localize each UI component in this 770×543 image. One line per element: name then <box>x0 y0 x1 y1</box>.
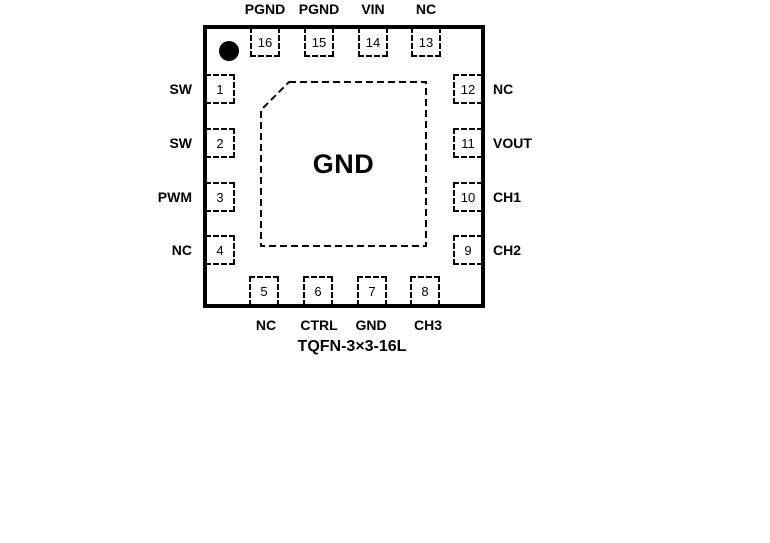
pinout-diagram: PGND PGND VIN NC SW SW PWM NC NC VOUT CH… <box>0 0 770 543</box>
pin-6-label: CTRL <box>300 317 337 333</box>
pin-5-label: NC <box>256 317 276 333</box>
pin-10-label: CH1 <box>493 189 521 205</box>
pin-pad-16: 16 <box>250 27 280 57</box>
pin-13-label: NC <box>416 1 436 17</box>
pin-number: 8 <box>421 285 428 298</box>
pin-8-label: CH3 <box>414 317 442 333</box>
pin-number: 4 <box>216 244 223 257</box>
pin-number: 2 <box>216 137 223 150</box>
pin-number: 13 <box>419 36 433 49</box>
pin-pad-5: 5 <box>249 276 279 306</box>
pin-number: 16 <box>258 36 272 49</box>
pin-pad-2: 2 <box>205 128 235 158</box>
pin-pad-12: 12 <box>453 74 483 104</box>
pin-pad-9: 9 <box>453 235 483 265</box>
pin-number: 14 <box>366 36 380 49</box>
pin-pad-7: 7 <box>357 276 387 306</box>
pin-number: 11 <box>461 137 475 150</box>
pin-pad-4: 4 <box>205 235 235 265</box>
pin-14-label: VIN <box>361 1 384 17</box>
pin-7-label: GND <box>355 317 386 333</box>
pin-pad-10: 10 <box>453 182 483 212</box>
pin-pad-15: 15 <box>304 27 334 57</box>
pin-3-label: PWM <box>158 189 192 205</box>
pin-number: 15 <box>312 36 326 49</box>
pin-2-label: SW <box>169 135 192 151</box>
pin-12-label: NC <box>493 81 513 97</box>
pin-number: 1 <box>216 83 223 96</box>
pin-pad-11: 11 <box>453 128 483 158</box>
pin-16-label: PGND <box>245 1 285 17</box>
pin-pad-14: 14 <box>358 27 388 57</box>
pin1-indicator-dot <box>219 41 239 61</box>
pin-pad-1: 1 <box>205 74 235 104</box>
pin-number: 9 <box>464 244 471 257</box>
pin-number: 3 <box>216 191 223 204</box>
pin-pad-13: 13 <box>411 27 441 57</box>
pin-pad-6: 6 <box>303 276 333 306</box>
pin-number: 5 <box>260 285 267 298</box>
package-name-caption: TQFN-3×3-16L <box>298 338 407 356</box>
pin-4-label: NC <box>172 242 192 258</box>
chip-package-outline: GND 16 15 14 13 1 2 3 4 12 11 10 9 5 6 7… <box>203 25 485 308</box>
pin-pad-3: 3 <box>205 182 235 212</box>
pin-15-label: PGND <box>299 1 339 17</box>
exposed-pad-label: GND <box>260 81 427 247</box>
pin-number: 10 <box>461 191 475 204</box>
pin-11-label: VOUT <box>493 135 532 151</box>
pin-number: 7 <box>368 285 375 298</box>
pin-9-label: CH2 <box>493 242 521 258</box>
pin-number: 12 <box>461 83 475 96</box>
pin-pad-8: 8 <box>410 276 440 306</box>
pin-number: 6 <box>314 285 321 298</box>
pin-1-label: SW <box>169 81 192 97</box>
